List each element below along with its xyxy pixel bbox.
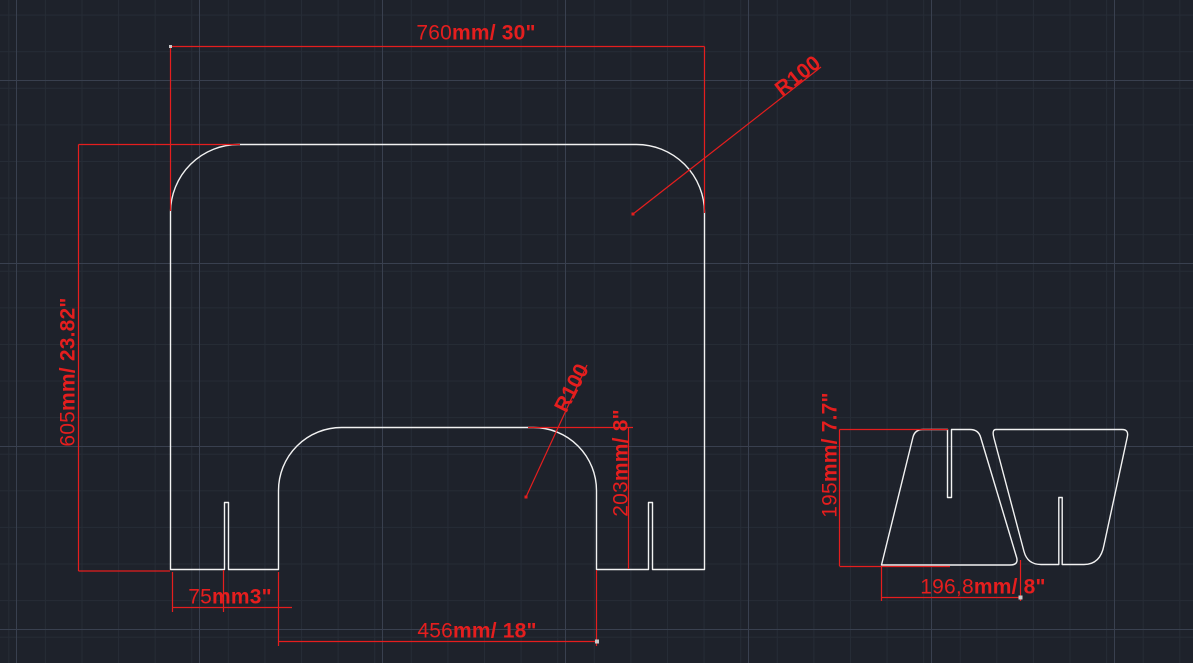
dim-unit: mm/ 18" — [453, 620, 537, 643]
dim-value: 75 — [188, 586, 212, 609]
dim-label-window-width: 456mm/ 18" — [417, 621, 536, 642]
dim-label-bracket-width: 196,8mm/ 8" — [920, 577, 1045, 598]
dim-unit: mm/ 30" — [452, 22, 536, 45]
dim-label-slot-offset: 75mm3" — [188, 587, 272, 608]
dim-label-panel-height: 605mm/ 23.82" — [58, 297, 79, 446]
dim-value: 195 — [819, 482, 842, 518]
dim-unit: mm/ 7.7" — [819, 392, 842, 482]
definition-point-markers — [169, 45, 1023, 644]
dim-unit: mm/ 8" — [974, 576, 1046, 599]
dim-lines-panel-width — [171, 47, 705, 214]
dim-unit: mm/ 23.82" — [57, 297, 80, 411]
dim-lines-bracket-height — [840, 430, 951, 567]
cad-canvas[interactable]: 760mm/ 30" 605mm/ 23.82" R100 R100 203mm… — [0, 0, 1193, 663]
dim-value: 760 — [416, 22, 452, 45]
dim-label-bracket-height: 195mm/ 7.7" — [820, 392, 841, 517]
dim-label-panel-width: 760mm/ 30" — [416, 23, 535, 44]
dim-lines-panel-height — [79, 145, 241, 572]
dim-value: 605 — [57, 411, 80, 447]
dim-unit: mm/ 8" — [610, 409, 633, 481]
dim-value: 456 — [417, 620, 453, 643]
dim-value: 203 — [610, 481, 633, 517]
dim-value: 196,8 — [920, 576, 974, 599]
dim-label-window-height: 203mm/ 8" — [611, 409, 632, 517]
dim-unit: mm3" — [212, 586, 272, 609]
drawing-geometry — [0, 0, 1193, 663]
